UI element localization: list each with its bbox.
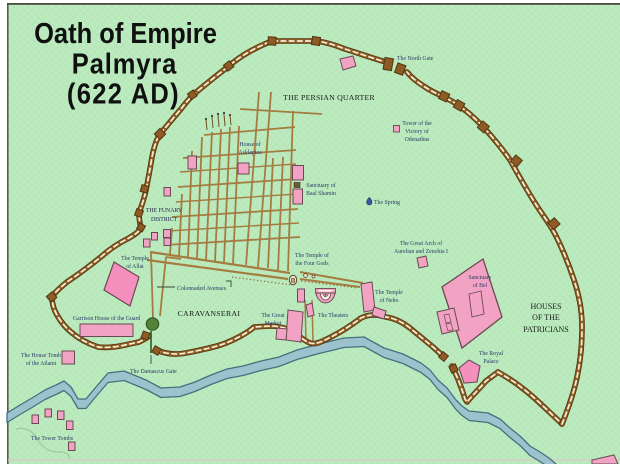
svg-text:The Temple of: The Temple of (295, 252, 329, 259)
svg-text:The House Tomb: The House Tomb (21, 353, 61, 359)
svg-text:The Theaters: The Theaters (318, 313, 349, 319)
svg-text:Market: Market (265, 321, 282, 327)
svg-text:Sanctuary of: Sanctuary of (306, 182, 336, 189)
svg-text:THE PERSIAN QUARTER: THE PERSIAN QUARTER (283, 93, 375, 102)
svg-text:The Tower Tombs: The Tower Tombs (31, 436, 74, 442)
svg-text:PATRICIANS: PATRICIANS (523, 325, 569, 334)
svg-text:HOUSES: HOUSES (530, 302, 561, 311)
svg-text:(622 AD): (622 AD) (67, 77, 180, 110)
svg-text:Baal Shamin: Baal Shamin (306, 191, 336, 197)
svg-text:The Damascus Gate: The Damascus Gate (130, 369, 177, 375)
svg-text:THE FUNARY: THE FUNARY (146, 208, 183, 214)
svg-text:CARAVANSERAI: CARAVANSERAI (178, 309, 241, 318)
svg-text:The Temple: The Temple (375, 290, 403, 296)
svg-text:Garrison House of the Guard: Garrison House of the Guard (73, 315, 140, 322)
svg-text:The Great: The Great (261, 313, 285, 319)
svg-text:Tower of the: Tower of the (402, 120, 432, 127)
svg-text:The Temple: The Temple (121, 256, 149, 262)
svg-text:The Spring: The Spring (374, 200, 400, 206)
svg-text:of Nebo: of Nebo (380, 297, 399, 304)
svg-text:Oath of Empire: Oath of Empire (34, 16, 217, 49)
svg-text:DISTRICT: DISTRICT (151, 217, 178, 223)
svg-text:The Royal: The Royal (479, 351, 504, 357)
svg-text:OF THE: OF THE (532, 313, 560, 322)
svg-text:Aurelian and Zenobia I: Aurelian and Zenobia I (394, 249, 448, 255)
svg-text:Asklepios: Asklepios (238, 150, 262, 156)
svg-text:of the Ailami: of the Ailami (26, 360, 57, 367)
svg-text:of Allat: of Allat (126, 263, 144, 270)
svg-text:of Bel: of Bel (473, 282, 488, 289)
svg-text:Colonnaded Avenues: Colonnaded Avenues (177, 286, 227, 292)
svg-text:House of: House of (239, 141, 260, 148)
svg-text:Sanctuary: Sanctuary (468, 275, 491, 281)
svg-text:Palmyra: Palmyra (72, 47, 177, 80)
svg-text:Odenathus: Odenathus (405, 137, 431, 143)
svg-text:The Great Arch of: The Great Arch of (400, 240, 442, 247)
svg-text:Victory of: Victory of (405, 128, 429, 135)
svg-text:the Four Gods: the Four Gods (295, 261, 329, 267)
svg-text:The North Gate: The North Gate (397, 56, 434, 62)
svg-text:Palace: Palace (483, 359, 499, 365)
